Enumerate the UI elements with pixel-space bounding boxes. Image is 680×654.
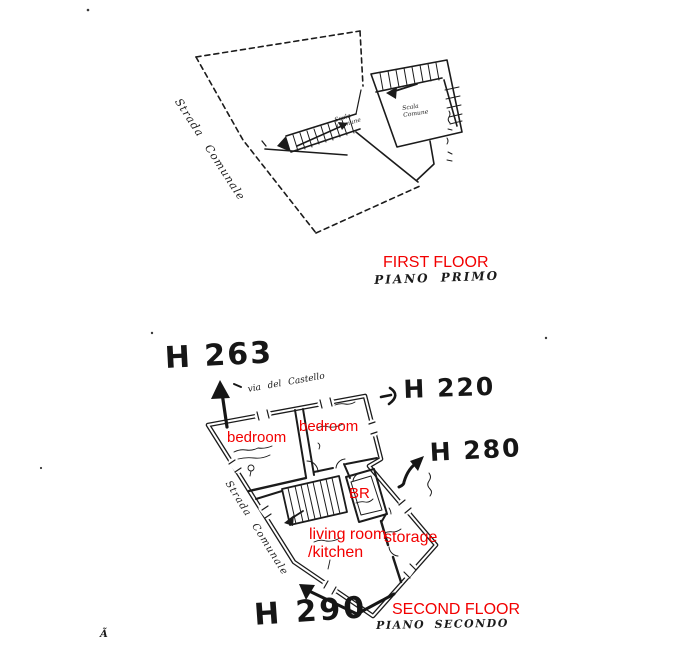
height-arrow-h220 [381, 388, 395, 404]
second-floor-subtitle: PIANO SECONDO [376, 617, 509, 632]
second-floor-stairs [282, 476, 347, 526]
room-label-living-room: living room [309, 526, 386, 544]
room-label-bedroom-left: bedroom [227, 429, 286, 446]
stairs-hatching-second [288, 478, 340, 524]
property-dashed-boundary [196, 31, 420, 233]
height-label-h220: H 220 [403, 372, 496, 404]
room-label-bathroom: BR [349, 485, 370, 502]
height-label-h280: H 280 [429, 433, 522, 467]
room-label-bedroom-right: bedroom [299, 418, 358, 435]
room-label-kitchen: /kitchen [308, 544, 363, 562]
corner-mark: Ã [100, 629, 108, 640]
height-arrow-h280 [399, 456, 432, 496]
scanned-floorplan-document: Strada Comunale Scala Comune Scala Comun… [0, 0, 680, 654]
room-label-storage: storage [384, 529, 437, 547]
height-label-h263: H 263 [164, 335, 274, 376]
